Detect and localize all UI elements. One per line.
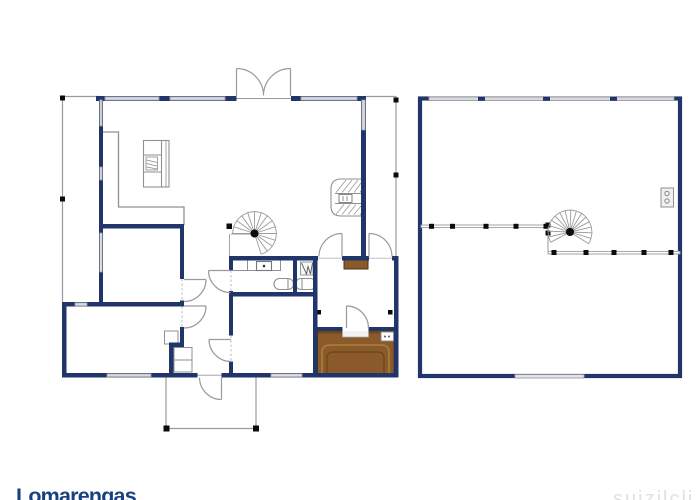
svg-text:suizilcli: suizilcli — [613, 488, 694, 500]
svg-text:Lomarengas: Lomarengas — [16, 484, 137, 500]
